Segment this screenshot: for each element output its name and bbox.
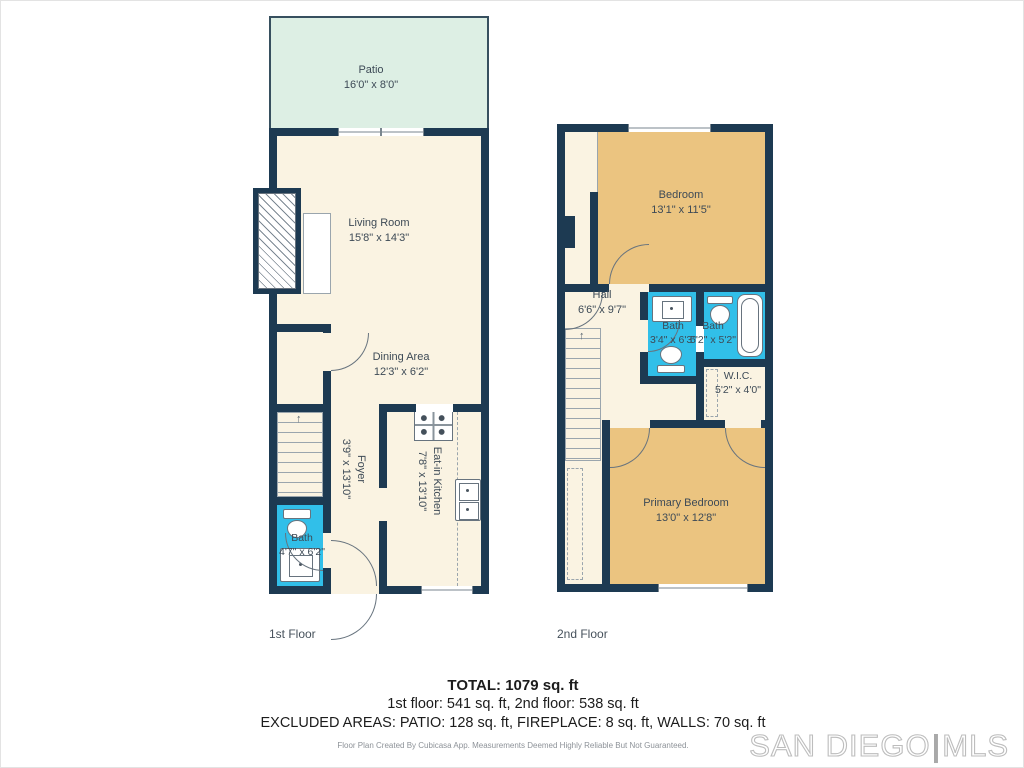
room-name: Dining Area <box>331 350 471 365</box>
bath-right-label: Bath 5'2" x 5'2" <box>673 320 753 348</box>
wall <box>269 497 331 505</box>
bath-label: Bath 4'7" x 6'2" <box>269 532 335 560</box>
window <box>658 584 748 592</box>
wall <box>269 404 331 412</box>
room-name: Foyer <box>353 455 368 483</box>
room-dims: 13'0" x 12'8" <box>616 511 756 526</box>
fireplace <box>253 188 301 294</box>
caption-2nd-floor: 2nd Floor <box>557 627 608 641</box>
room-dims: 15'8" x 14'3" <box>309 231 449 246</box>
wall <box>379 412 387 488</box>
wic-label: W.I.C. 5'2" x 4'0" <box>693 370 783 398</box>
room-name: W.I.C. <box>693 370 783 384</box>
room-dims: 7'8" x 13'10" <box>414 451 429 511</box>
dining-area-label: Dining Area 12'3" x 6'2" <box>331 350 471 379</box>
caption-1st-floor: 1st Floor <box>269 627 316 641</box>
floor-areas: 1st floor: 541 sq. ft, 2nd floor: 538 sq… <box>1 696 1024 713</box>
room-dims: 5'2" x 5'2" <box>673 334 753 348</box>
sink-basin <box>459 483 479 501</box>
faucet-dot <box>466 489 469 492</box>
front-door-arc <box>331 594 377 640</box>
wall <box>323 371 331 533</box>
bedroom-label: Bedroom 13'1" x 11'5" <box>611 188 751 217</box>
window <box>628 124 711 132</box>
room-name: Bath <box>673 320 753 334</box>
wall <box>649 284 765 292</box>
living-room-label: Living Room 15'8" x 14'3" <box>309 216 449 245</box>
room-dims: 5'2" x 4'0" <box>693 384 783 398</box>
room-name: Eat-in Kitchen <box>429 447 444 515</box>
kitchen-sink-icon <box>455 479 481 521</box>
wall <box>696 359 765 367</box>
sink-basin <box>662 301 684 319</box>
san-diego-mls-watermark: SAN DIEGO|MLS <box>749 728 1009 764</box>
floorplan-2nd-floor: ↑ <box>557 124 773 592</box>
stairs-up-arrow: ↑ <box>296 414 302 425</box>
foyer-label: Foyer 3'9" x 13'10" <box>336 409 370 529</box>
room-dims: 4'7" x 6'2" <box>269 546 335 560</box>
window-mullion <box>380 128 382 136</box>
partition-line <box>597 132 598 192</box>
closet-dashed <box>567 468 583 580</box>
wall <box>323 568 331 586</box>
fireplace-hatch <box>258 193 296 289</box>
wall <box>590 192 598 284</box>
wall <box>269 324 331 332</box>
room-name: Primary Bedroom <box>616 496 756 511</box>
hall-label: Hall 6'6" x 9'7" <box>562 288 642 317</box>
watermark-separator: | <box>931 728 943 763</box>
watermark-right: MLS <box>942 728 1009 763</box>
watermark-left: SAN DIEGO <box>749 728 930 763</box>
sink-vanity-icon <box>652 296 692 322</box>
sink-basin <box>459 502 479 520</box>
room-dims: 13'1" x 11'5" <box>611 203 751 218</box>
room-dims: 12'3" x 6'2" <box>331 365 471 380</box>
faucet-dot <box>466 508 469 511</box>
total-area: TOTAL: 1079 sq. ft <box>1 677 1024 694</box>
faucet-dot <box>670 307 673 310</box>
toilet-icon <box>657 365 685 373</box>
window <box>421 586 473 594</box>
stairs-up-arrow: ↑ <box>579 331 585 342</box>
toilet-icon <box>707 296 733 304</box>
wall <box>650 420 725 428</box>
floorplan-image: Patio 16'0" x 8'0" ↑ <box>0 0 1024 768</box>
room-name: Hall <box>562 288 642 303</box>
room-name: Patio <box>301 63 441 78</box>
patio-label: Patio 16'0" x 8'0" <box>301 63 441 92</box>
wall <box>640 352 648 376</box>
toilet-icon <box>283 509 311 519</box>
primary-bedroom-label: Primary Bedroom 13'0" x 12'8" <box>616 496 756 525</box>
room-dims: 3'9" x 13'10" <box>338 439 353 499</box>
wall <box>602 420 610 428</box>
wall <box>323 324 331 333</box>
wall <box>602 428 610 584</box>
wall <box>379 521 387 586</box>
floorplan-1st-floor: ↑ Living Room 15'8" x 14'3" Dining Area … <box>269 128 489 594</box>
room-name: Bath <box>269 532 335 546</box>
room-dims: 16'0" x 8'0" <box>301 78 441 93</box>
room-name: Bedroom <box>611 188 751 203</box>
kitchen-label: Eat-in Kitchen 7'8" x 13'10" <box>412 421 446 541</box>
front-door-opening <box>331 586 379 594</box>
wall <box>761 420 765 428</box>
room-dims: 6'6" x 9'7" <box>562 303 642 318</box>
wall <box>557 216 575 248</box>
kitchen-pass-through <box>416 404 453 412</box>
room-name: Living Room <box>309 216 449 231</box>
stairs <box>565 328 601 461</box>
